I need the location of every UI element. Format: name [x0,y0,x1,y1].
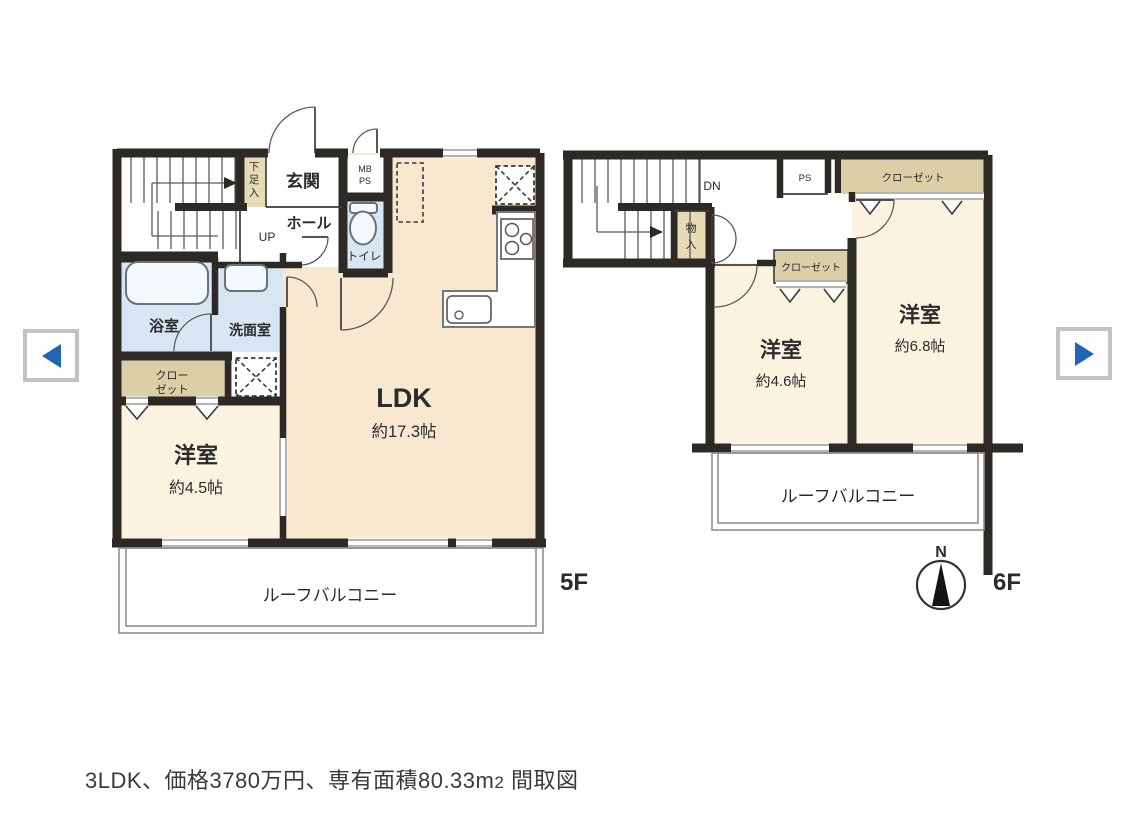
next-image-button[interactable] [1056,327,1112,380]
wash-basin [225,265,267,291]
shoe-cupboard-label: 下 [249,161,260,173]
stairs-5f [131,155,247,249]
bathtub [126,262,208,304]
stairs-up-label: UP [259,230,276,244]
stairs-down-label: DN [703,179,720,193]
closet-mid-label: クローゼット [781,262,841,274]
bath-label: 浴室 [149,317,179,335]
pipe-shaft-label: PS [359,176,371,186]
left-triangle-icon [42,344,61,368]
closet-label: ゼット [156,383,189,396]
caption-suffix: 間取図 [504,768,578,793]
balcony-label: ルーフバルコニー [263,586,398,605]
bedroom-small-name-label: 洋室 [760,338,802,362]
bedroom-size-label: 約4.5帖 [169,479,223,497]
shoe-cupboard-label: 入 [249,187,260,199]
bedroom-large-size-label: 約6.8帖 [895,338,946,355]
washroom-label: 洗面室 [229,322,271,338]
compass-north-label: N [935,544,947,561]
floor-label-5f: 5F [560,569,588,596]
toilet-bowl [350,212,376,245]
ldk-name-label: LDK [376,383,432,413]
pipe-shaft-label: PS [799,173,812,184]
balcony-label: ルーフバルコニー [781,487,916,506]
floor-label-6f: 6F [993,569,1021,596]
right-triangle-icon [1075,342,1094,366]
bedroom-large-name-label: 洋室 [899,303,941,327]
closet-label: クロー [156,369,189,382]
meter-box-label: MB [358,164,372,174]
stair-arrow-icon [650,226,663,238]
storage-label: 物 [686,221,697,235]
closet-top-label: クローゼット [882,172,945,184]
prev-image-button[interactable] [23,329,79,382]
stair-treads-lower [158,211,236,249]
door-arc [269,107,315,153]
floorplan-5f: 玄関 下 足 入 MB PS ホール UP トイレ 浴室 洗面室 クロー ゼット… [112,107,588,633]
kitchen-sink [447,296,491,323]
bedroom-small-size-label: 約4.6帖 [756,373,807,390]
ldk-size-label: 約17.3帖 [371,422,436,441]
stair-treads-upper [131,155,235,203]
hall-label: ホール [286,215,331,232]
floorplan-6f: N DN 物 入 PS クローゼット クローゼット 洋室 約4.6帖 洋室 約6… [563,155,1023,609]
bedroom-area-5f [117,401,283,543]
caption-text: 3LDK、価格3780万円、専有面積80.33m [85,768,494,793]
stair-divider [618,203,712,211]
meter-pipe-space [348,155,383,195]
door-arc [353,129,377,153]
floorplan-image: 玄関 下 足 入 MB PS ホール UP トイレ 浴室 洗面室 クロー ゼット… [0,0,1130,740]
entrance-label: 玄関 [286,171,320,191]
caption-area-digit: 2 [494,773,504,792]
storage-label: 入 [686,239,697,251]
bedroom-name-label: 洋室 [174,443,218,468]
storage-area [674,211,710,261]
door-arc [712,215,736,263]
compass: N [917,544,965,609]
stair-treads-upper [582,159,699,203]
shoe-cupboard-label: 足 [249,174,260,186]
toilet-label: トイレ [347,251,382,263]
listing-caption: 3LDK、価格3780万円、専有面積80.33m2 間取図 [85,763,578,795]
